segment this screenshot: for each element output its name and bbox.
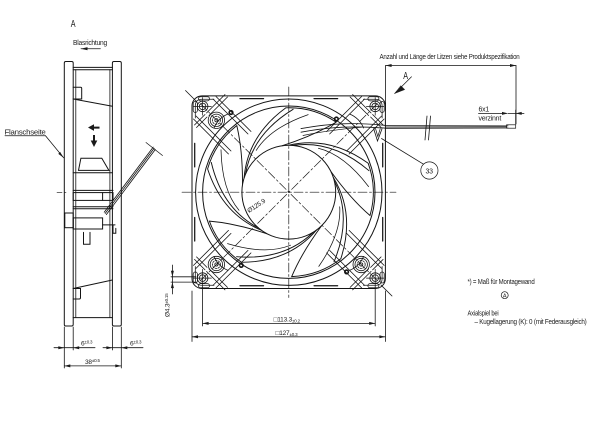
svg-text:33: 33 (426, 169, 434, 176)
svg-text:Axialspiel bei: Axialspiel bei (468, 311, 500, 318)
svg-text:Anzahl und Länge der Litzen si: Anzahl und Länge der Litzen siehe Produk… (380, 54, 520, 61)
svg-text:Blasrichtung: Blasrichtung (73, 40, 107, 47)
svg-text:– Kugellagerung (K): 0 (mit Fe: – Kugellagerung (K): 0 (mit Federausglei… (475, 319, 587, 326)
svg-text:verzinnt: verzinnt (479, 116, 502, 123)
svg-text:*) = Maß für Montagewand: *) = Maß für Montagewand (468, 279, 535, 286)
svg-text:□113.3±0.2: □113.3±0.2 (274, 317, 301, 324)
svg-text:Flanschseite: Flanschseite (5, 130, 46, 137)
svg-text:6x1: 6x1 (479, 107, 490, 114)
svg-text:□127±0.3: □127±0.3 (276, 330, 299, 337)
svg-text:A: A (403, 70, 408, 81)
svg-text:A: A (71, 18, 76, 29)
